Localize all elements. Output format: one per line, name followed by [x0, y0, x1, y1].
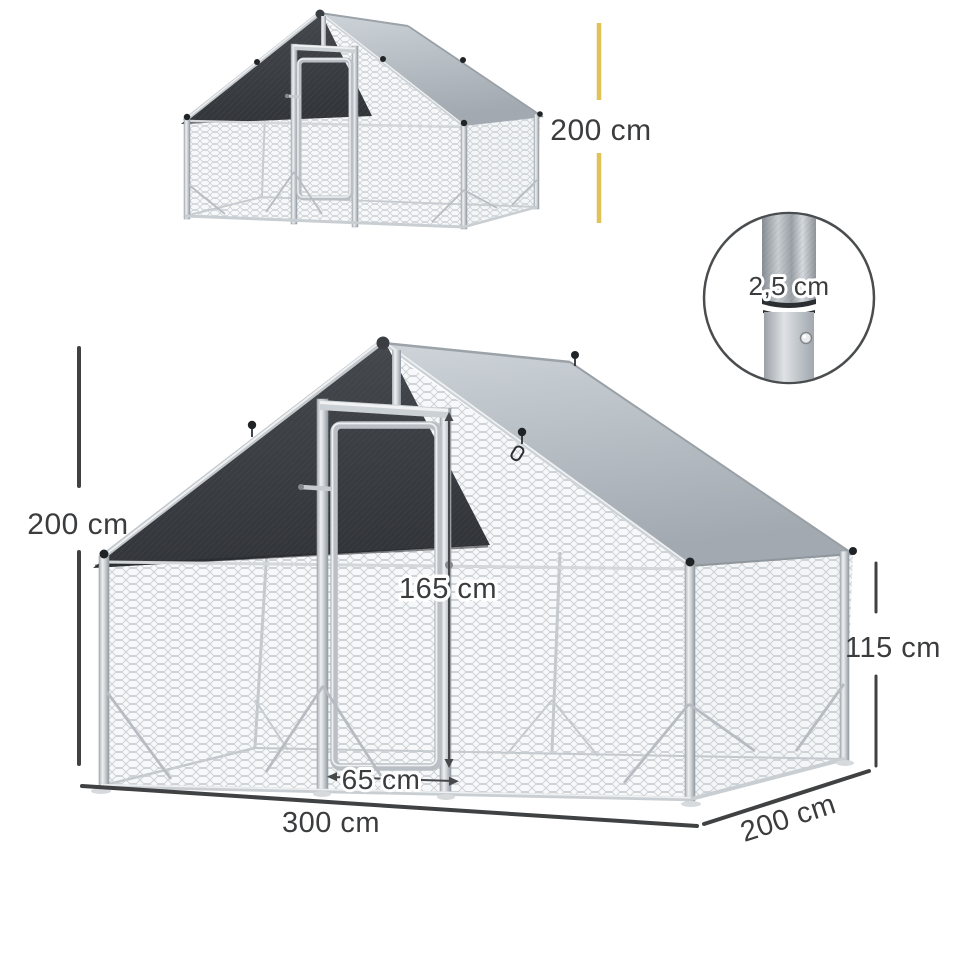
foot [836, 760, 854, 766]
thumb-post-front-left [184, 117, 190, 219]
corner-cap [100, 550, 109, 559]
thumb-gable-center-post [321, 16, 326, 48]
post-front-left [99, 556, 109, 788]
thumb-post-back-right [534, 114, 539, 209]
side-height-dimension: 115 cm [845, 563, 941, 766]
diagram-canvas: 200 cm 2,5 cm [0, 0, 960, 960]
door-latch [301, 487, 332, 489]
gable-center-post [392, 350, 401, 407]
corner-cap [461, 120, 467, 126]
thumbnail-height-dimension: 200 cm [550, 23, 651, 223]
corner-cap [686, 558, 695, 567]
post-front-right [685, 563, 695, 801]
corner-cap [184, 114, 190, 120]
tie-knob [518, 428, 526, 436]
tube-diameter-detail: 2,5 cm [704, 210, 874, 388]
thumb-post-front-right [461, 123, 467, 229]
tube-diameter-label: 2,5 cm [748, 271, 829, 301]
thumb-door-post-left [291, 44, 297, 224]
pole-push-pin [801, 333, 812, 344]
main-height-label: 200 cm [27, 508, 128, 541]
width-label: 300 cm [282, 807, 380, 839]
foot [681, 801, 701, 807]
thumbnail-height-label: 200 cm [550, 114, 651, 147]
tie-knob [254, 59, 260, 65]
side-height-label: 115 cm [845, 632, 941, 664]
corner-cap [849, 547, 857, 555]
tie-knob [248, 421, 256, 429]
tie-knob [460, 57, 466, 63]
pole-lower-section [764, 312, 814, 388]
main-coop-illustration [91, 337, 857, 808]
thumb-latch-knob [285, 94, 289, 98]
thumbnail-coop-illustration [181, 10, 543, 230]
pole-push-pin-highlight [803, 335, 807, 339]
product-dimension-diagram: 200 cm 2,5 cm [0, 0, 960, 960]
tie-knob [571, 351, 579, 359]
corner-cap [537, 111, 543, 117]
door-post-left [317, 399, 328, 792]
foot [437, 794, 455, 800]
door-latch-knob [298, 484, 304, 490]
foot [313, 791, 331, 797]
tie-knob [380, 56, 386, 62]
apex-cap [377, 337, 390, 350]
door-width-label: 65 cm [342, 764, 421, 795]
door-height-label: 165 cm [399, 573, 497, 605]
